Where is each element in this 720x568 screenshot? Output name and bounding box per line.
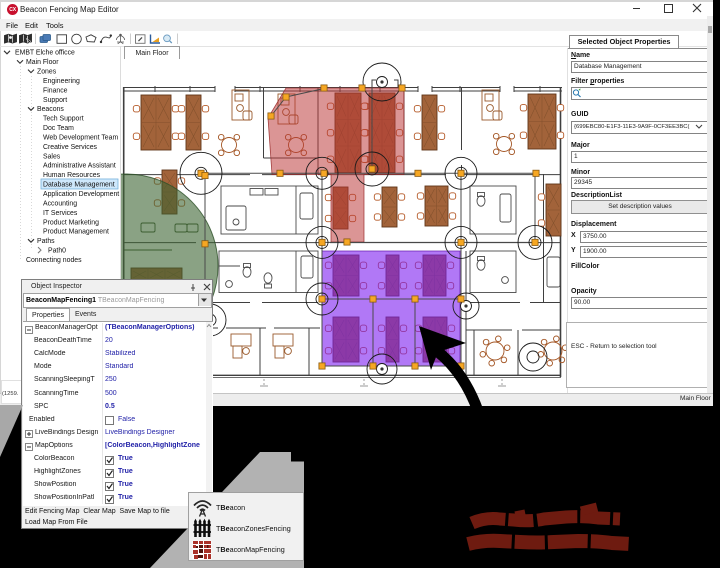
svg-text:Product Marketing: Product Marketing [43, 219, 99, 226]
svg-text:Sales: Sales [43, 153, 61, 160]
svg-text:Product Management: Product Management [43, 229, 109, 236]
svg-text:Finance: Finance [43, 87, 68, 94]
svg-text:Zones: Zones [37, 69, 57, 76]
svg-text:Paths: Paths [37, 238, 55, 245]
svg-text:Database Management: Database Management [43, 182, 115, 189]
svg-text:Tech Support: Tech Support [43, 116, 84, 123]
svg-text:Creative Services: Creative Services [43, 144, 98, 151]
svg-text:IT Services: IT Services [43, 210, 78, 217]
svg-text:Accounting: Accounting [43, 200, 77, 207]
svg-text:EMBT Elche officce: EMBT Elche officce [15, 50, 75, 57]
svg-text:Main Floor: Main Floor [26, 59, 59, 66]
svg-text:Application Development: Application Development [43, 191, 119, 198]
svg-text:Beacons: Beacons [37, 106, 64, 113]
svg-text:Engineering: Engineering [43, 78, 80, 85]
svg-text:Web Development Team: Web Development Team [43, 134, 118, 141]
svg-text:Support: Support [43, 97, 67, 104]
svg-text:Human Resources: Human Resources [43, 172, 101, 179]
svg-text:Connecting nodes: Connecting nodes [26, 257, 82, 264]
svg-text:Doc Team: Doc Team [43, 125, 74, 132]
svg-text:Path0: Path0 [48, 248, 66, 255]
svg-text:Administrative Assistant: Administrative Assistant [43, 163, 116, 170]
